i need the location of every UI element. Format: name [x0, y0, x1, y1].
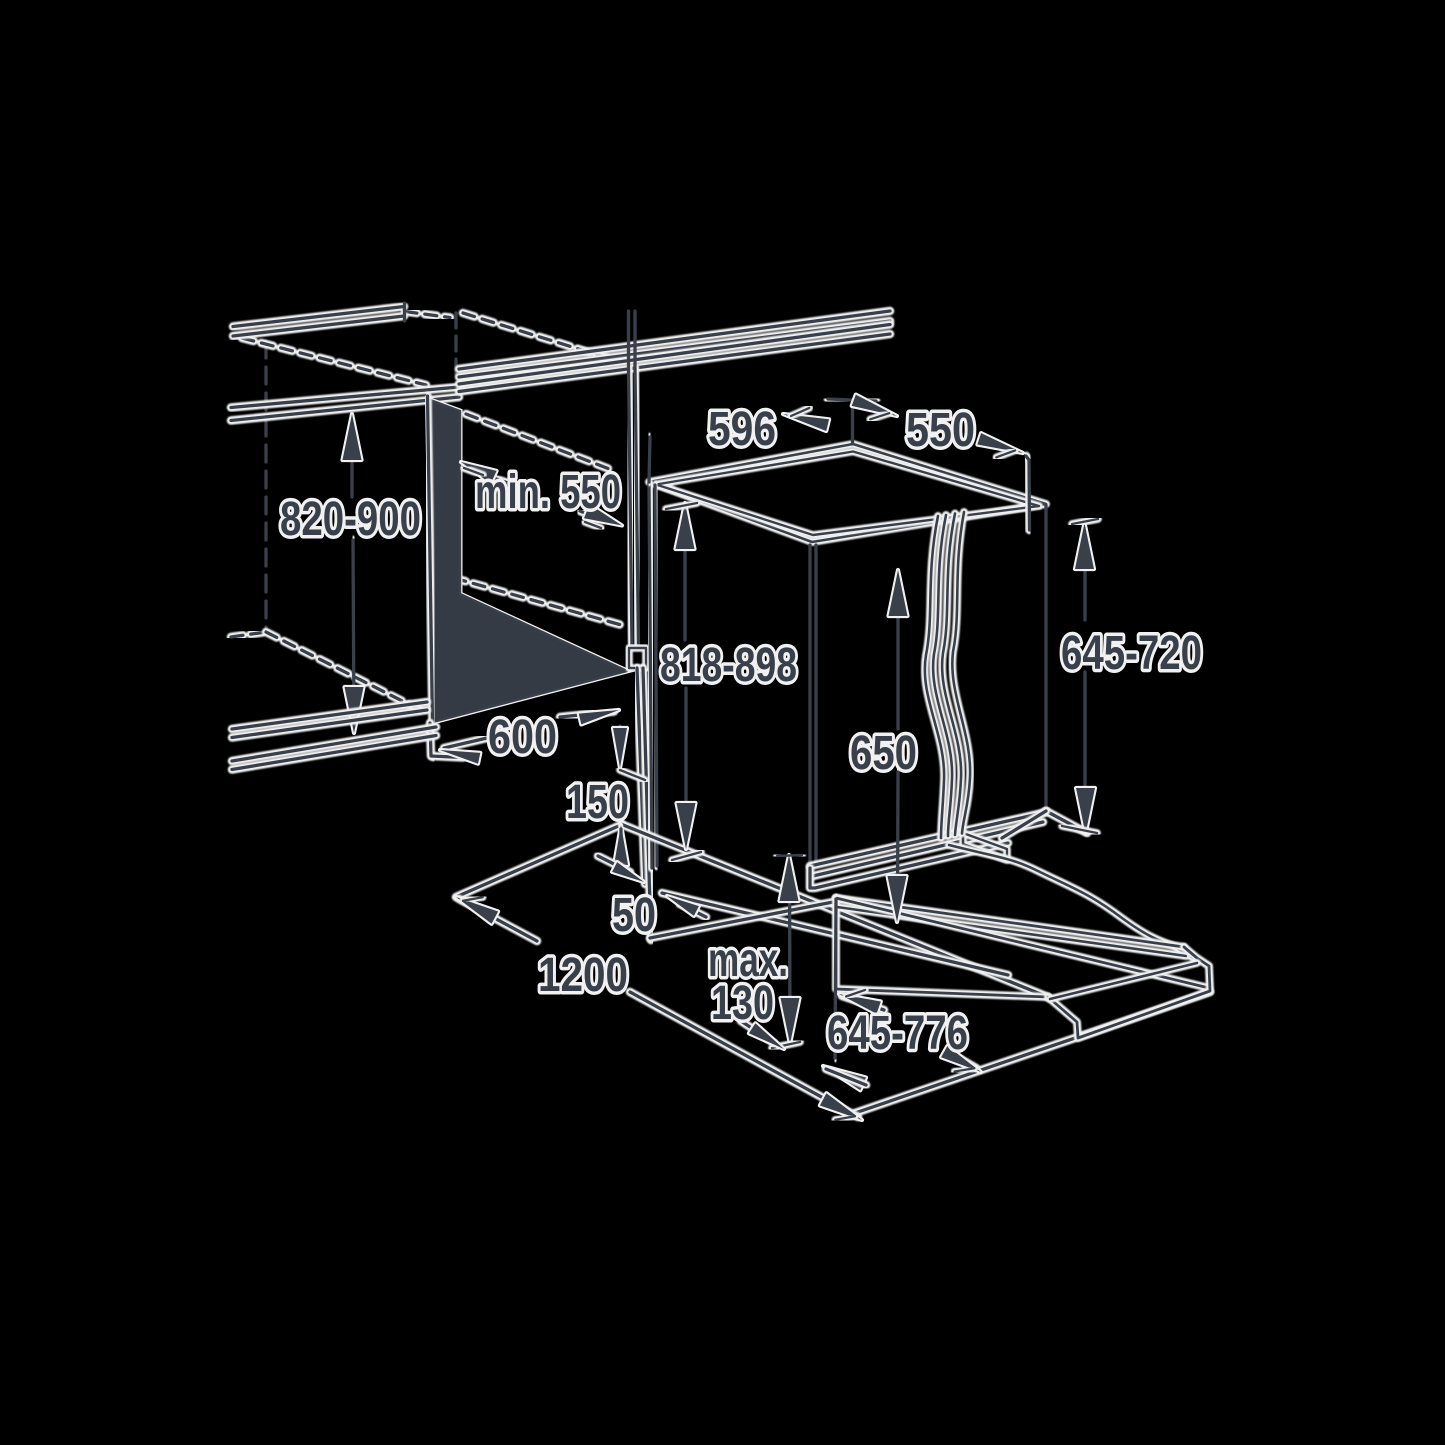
svg-text:645-776: 645-776 [827, 1007, 968, 1060]
svg-text:600: 600 [488, 711, 557, 764]
svg-text:596: 596 [708, 403, 776, 456]
svg-text:650: 650 [850, 727, 917, 780]
svg-text:150: 150 [566, 776, 629, 829]
svg-text:645-720: 645-720 [1061, 627, 1202, 680]
svg-text:818-898: 818-898 [660, 639, 797, 692]
svg-text:1200: 1200 [538, 949, 628, 1002]
svg-text:550: 550 [906, 404, 975, 457]
svg-text:50: 50 [612, 889, 656, 942]
svg-text:130: 130 [711, 977, 774, 1030]
svg-text:820-900: 820-900 [280, 493, 421, 546]
svg-text:min. 550: min. 550 [475, 466, 621, 519]
